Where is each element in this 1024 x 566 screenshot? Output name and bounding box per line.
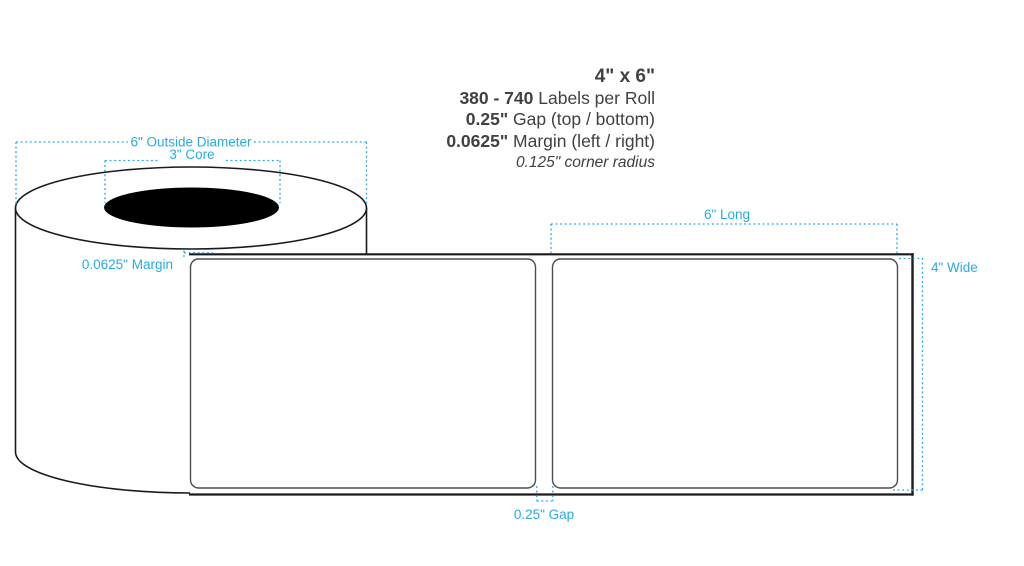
- spec-margin-value: 0.0625": [446, 131, 508, 151]
- dim-length: 6" Long: [551, 207, 897, 256]
- dim-length-lines: [551, 224, 897, 256]
- spec-labels-per-roll-count: 380 - 740: [459, 88, 533, 108]
- roll-core: [104, 188, 279, 228]
- label-1: [191, 259, 536, 488]
- spec-margin: 0.0625" Margin (left / right): [446, 131, 655, 153]
- spec-block: 4" x 6" 380 - 740 Labels per Roll 0.25" …: [446, 66, 655, 174]
- spec-gap: 0.25" Gap (top / bottom): [446, 109, 655, 131]
- spec-gap-label: Gap (top / bottom): [508, 109, 655, 129]
- dim-gap-text: 0.25" Gap: [514, 507, 574, 522]
- spec-labels-per-roll: 380 - 740 Labels per Roll: [446, 88, 655, 110]
- spec-gap-value: 0.25": [466, 109, 508, 129]
- spec-size: 4" x 6": [446, 66, 655, 88]
- dim-left-margin-text: 0.0625" Margin: [82, 257, 173, 272]
- spec-margin-label: Margin (left / right): [508, 131, 655, 151]
- label-roll-spec-diagram: 6" Outside Diameter 3" Core 0.0625" Marg…: [0, 0, 1024, 566]
- spec-corner-radius: 0.125" corner radius: [446, 152, 655, 174]
- dim-length-text: 6" Long: [704, 207, 750, 222]
- spec-labels-per-roll-label: Labels per Roll: [533, 88, 655, 108]
- dim-width-text: 4" Wide: [931, 260, 978, 275]
- dim-core-text: 3" Core: [169, 147, 214, 162]
- label-2: [553, 259, 898, 488]
